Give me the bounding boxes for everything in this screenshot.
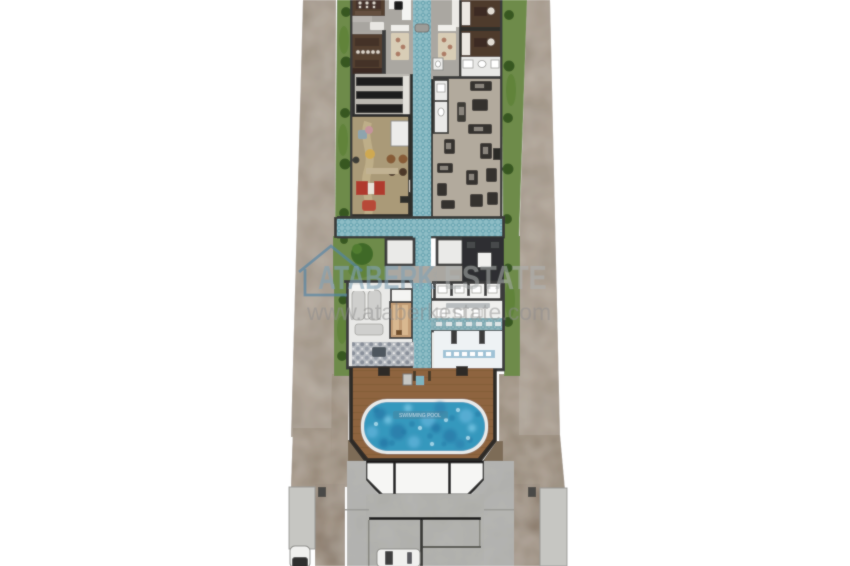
- svg-text:REAL: REAL: [433, 270, 439, 286]
- svg-text:www.ataberkestate.com: www.ataberkestate.com: [306, 299, 551, 325]
- svg-text:ESTATE: ESTATE: [444, 261, 547, 297]
- svg-text:SWIMMING POOL: SWIMMING POOL: [399, 413, 441, 419]
- svg-text:ATABERK: ATABERK: [318, 261, 435, 297]
